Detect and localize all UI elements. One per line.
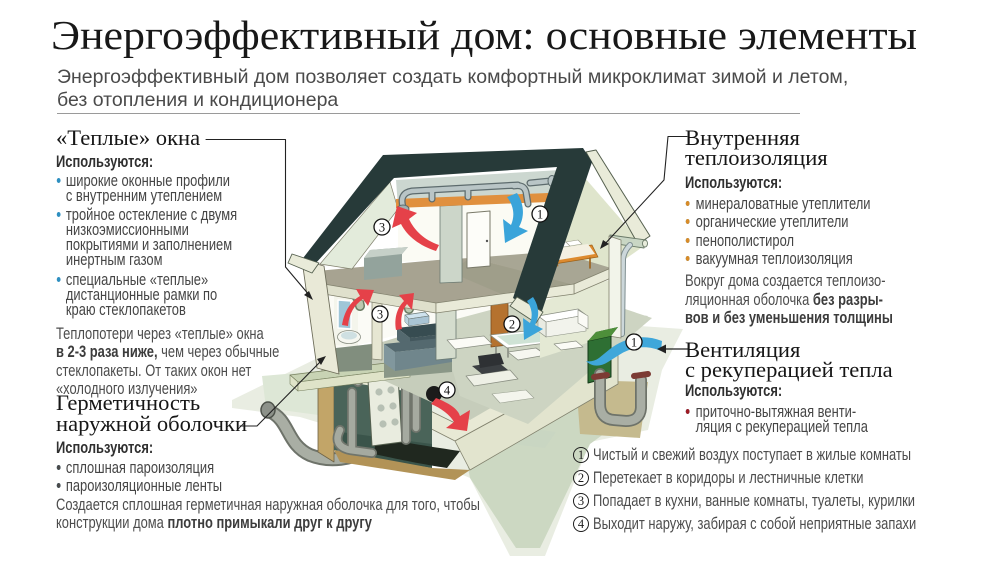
svg-text:1: 1 (537, 208, 543, 222)
svg-text:1: 1 (631, 336, 637, 350)
svg-text:4: 4 (444, 384, 451, 398)
svg-text:3: 3 (377, 308, 383, 322)
svg-text:3: 3 (379, 221, 385, 235)
svg-text:2: 2 (509, 318, 515, 332)
